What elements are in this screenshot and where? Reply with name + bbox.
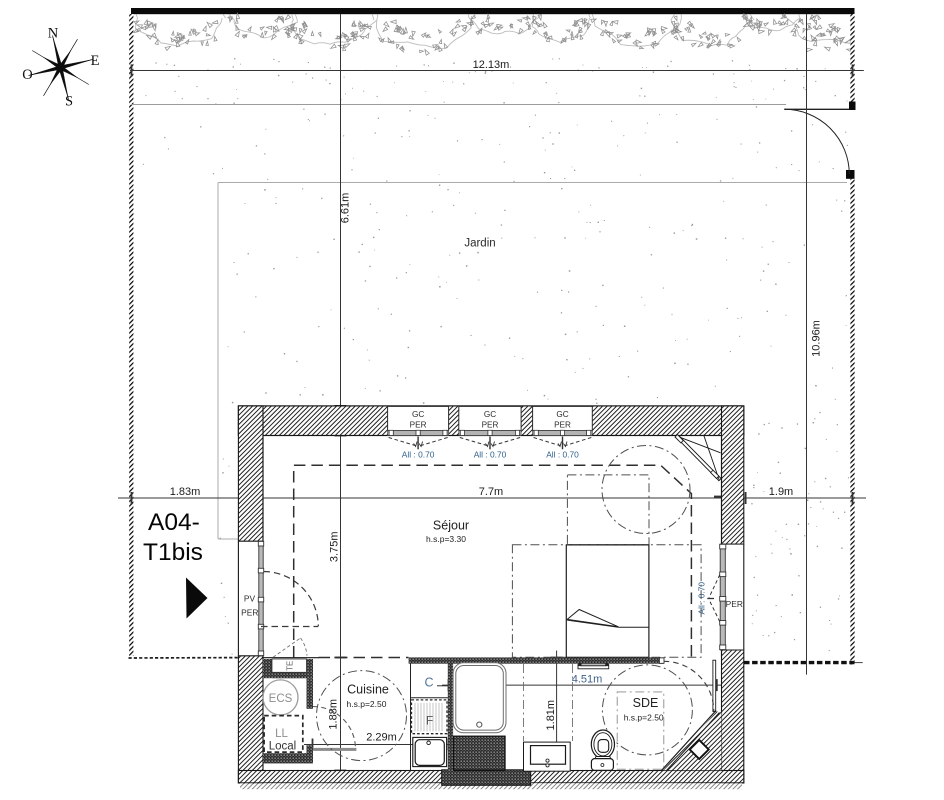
svg-text:TE: TE [285, 661, 294, 671]
svg-text:PER: PER [726, 599, 743, 609]
svg-text:1.83m: 1.83m [170, 486, 201, 498]
svg-text:3.75m: 3.75m [329, 532, 341, 563]
svg-text:N: N [48, 26, 59, 42]
svg-text:Local: Local [269, 741, 297, 753]
svg-text:PER: PER [482, 421, 499, 430]
svg-text:All : 0.70: All : 0.70 [402, 449, 435, 459]
svg-text:PER: PER [554, 421, 571, 430]
svg-text:h.s.p=2.50: h.s.p=2.50 [347, 699, 387, 709]
svg-text:SDE: SDE [633, 696, 659, 710]
svg-text:GC: GC [556, 410, 568, 419]
svg-text:S: S [65, 94, 73, 110]
svg-text:GC: GC [484, 410, 496, 419]
svg-text:PER: PER [410, 421, 427, 430]
svg-text:GC: GC [412, 410, 424, 419]
svg-text:1.9m: 1.9m [769, 486, 793, 498]
svg-text:10.96m: 10.96m [811, 320, 823, 357]
svg-text:All : 0.70: All : 0.70 [546, 449, 579, 459]
svg-text:Jardin: Jardin [464, 238, 495, 250]
svg-text:1.81m: 1.81m [545, 700, 557, 731]
svg-text:Cuisine: Cuisine [347, 682, 389, 696]
svg-text:T1bis: T1bis [143, 539, 203, 566]
svg-text:A04-: A04- [148, 509, 200, 536]
svg-text:Séjour: Séjour [433, 519, 469, 533]
svg-text:F: F [426, 714, 433, 728]
svg-text:LL: LL [275, 728, 288, 740]
svg-text:h.s.p=3.30: h.s.p=3.30 [426, 534, 466, 544]
svg-text:7.7m: 7.7m [479, 486, 503, 498]
svg-text:E: E [91, 53, 100, 69]
svg-text:All : 0.70: All : 0.70 [474, 449, 507, 459]
svg-text:12.13m: 12.13m [473, 59, 510, 71]
svg-text:O: O [22, 67, 32, 83]
svg-text:h.s.p=2.50: h.s.p=2.50 [624, 713, 664, 723]
svg-text:6.61m: 6.61m [340, 193, 352, 224]
svg-text:2.29m: 2.29m [366, 732, 397, 744]
svg-text:C: C [424, 676, 433, 690]
svg-text:4.51m: 4.51m [572, 673, 603, 685]
svg-text:PV: PV [244, 594, 256, 604]
svg-text:PER: PER [241, 608, 258, 618]
svg-text:ECS: ECS [269, 693, 293, 705]
